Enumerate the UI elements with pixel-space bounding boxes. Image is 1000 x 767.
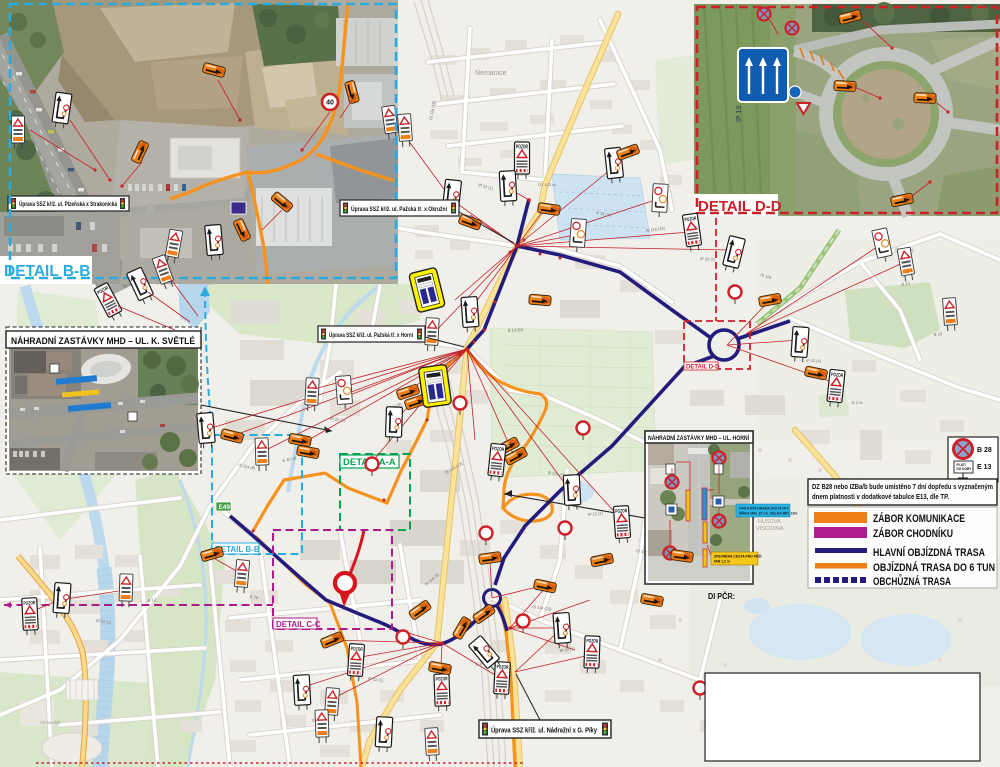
svg-text:NÁHRADNÍ ZASTÁVKY MHD – UL. HO: NÁHRADNÍ ZASTÁVKY MHD – UL. HORNÍ: [648, 433, 749, 442]
svg-text:ZPEVNĚNÁ CESTA PRO PĚŠÍ: ZPEVNĚNÁ CESTA PRO PĚŠÍ: [714, 554, 763, 559]
svg-text:ZÁBOR KOMUNIKACE: ZÁBOR KOMUNIKACE: [873, 512, 965, 525]
svg-text:dnem platnosti v dodatkové tab: dnem platnosti v dodatkové tabulce E13, …: [812, 494, 949, 501]
svg-text:E49: E49: [219, 504, 231, 511]
svg-text:HUSOVA: HUSOVA: [758, 519, 781, 525]
svg-text:B 28: B 28: [934, 331, 943, 337]
svg-text:DETAIL D-D: DETAIL D-D: [686, 365, 720, 371]
svg-text:HLAVNÍ OBJÍZDNÁ TRASA: HLAVNÍ OBJÍZDNÁ TRASA: [873, 546, 985, 559]
svg-text:B 17a: B 17a: [852, 400, 863, 405]
svg-text:IP 19: IP 19: [736, 106, 743, 122]
svg-text:Úprava SSZ kříž. ul. Pažská tř: Úprava SSZ kříž. ul. Pažská tř. x Okružn…: [351, 204, 447, 213]
svg-text:OBJÍZDNÁ TRASA DO 6 TUN: OBJÍZDNÁ TRASA DO 6 TUN: [873, 561, 995, 574]
svg-text:G1 122 ul.: G1 122 ul.: [538, 182, 556, 187]
svg-text:E 13: E 13: [977, 464, 992, 471]
svg-text:Výstaviště: Výstaviště: [40, 720, 61, 725]
svg-text:NÁSTUPNÍ HRANA ZASTÁVKY: NÁSTUPNÍ HRANA ZASTÁVKY: [739, 506, 789, 511]
svg-text:DETAIL C-C: DETAIL C-C: [276, 620, 321, 629]
svg-text:DO DOBY: DO DOBY: [957, 467, 973, 471]
svg-text:IP 22 (1): IP 22 (1): [806, 358, 822, 363]
svg-text:NÁHRADNÍ ZASTÁVKY MHD – UL. K.: NÁHRADNÍ ZASTÁVKY MHD – UL. K. SVĚTLÉ: [11, 335, 195, 346]
svg-text:DZ B28 nebo IZBa/b bude umístě: DZ B28 nebo IZBa/b bude umístěno 7 dní d…: [812, 484, 993, 491]
svg-text:B 28: B 28: [977, 447, 992, 454]
svg-text:ZÁBOR CHODNÍKU: ZÁBOR CHODNÍKU: [873, 527, 953, 540]
svg-text:Úprava SSZ kříž. ul. Pažská tř: Úprava SSZ kříž. ul. Pažská tř. x Horní: [329, 332, 413, 339]
svg-text:Úprava SSZ kříž. ul. Plzeňská: Úprava SSZ kříž. ul. Plzeňská x Strakoni…: [19, 201, 117, 208]
svg-text:VISCIDINA: VISCIDINA: [756, 526, 784, 532]
svg-text:MIN 1,2 m: MIN 1,2 m: [714, 560, 730, 564]
svg-text:OBCHŮZNÁ TRASA: OBCHŮZNÁ TRASA: [873, 574, 951, 588]
svg-text:40: 40: [326, 100, 334, 107]
svg-text:DI PČR:: DI PČR:: [708, 592, 735, 601]
svg-text:Nemanice: Nemanice: [475, 70, 507, 77]
svg-text:Úprava SSZ kříž. ul. Nádražní: Úprava SSZ kříž. ul. Nádražní x G. Píky: [491, 726, 597, 735]
svg-text:ŠÍŘKA MIN. 15 cm, DÉLKA MIN. 1: ŠÍŘKA MIN. 15 cm, DÉLKA MIN. 19m: [739, 511, 797, 516]
